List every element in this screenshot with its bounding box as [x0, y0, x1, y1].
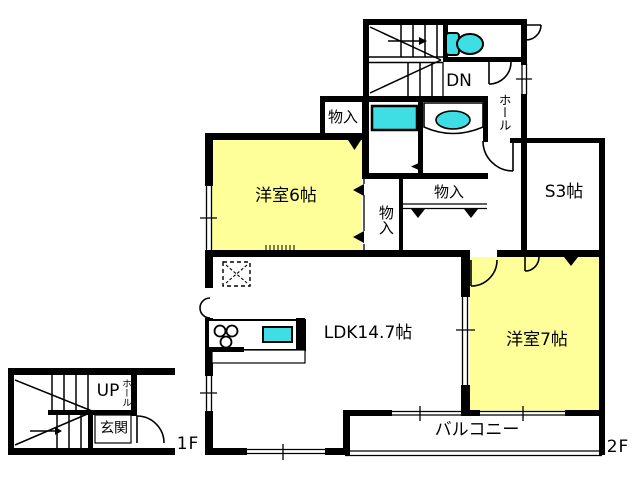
marker-washroom — [411, 162, 421, 171]
room-label-bedroom6: 洋室6帖 — [255, 188, 317, 206]
door-top-right — [526, 25, 541, 40]
room-label-closet-side: 物入 — [377, 205, 393, 235]
kitchen-sink-icon — [263, 327, 292, 342]
room-label-storage-s3: S3帖 — [545, 184, 584, 202]
room-label-ldk: LDK14.7帖 — [324, 325, 413, 343]
floor-plan-drawing — [0, 0, 640, 482]
window-ldk-bottom — [247, 444, 325, 460]
door-entrance-1f — [137, 416, 164, 443]
closet-middle-front — [403, 204, 487, 209]
floor-plan: 洋室6帖 S3帖 LDK14.7帖 洋室7帖 バルコニー 物入 物入 物入 ホー… — [0, 0, 640, 482]
door-ldk-west — [200, 298, 210, 318]
room-label-bedroom7: 洋室7帖 — [506, 332, 568, 350]
slider-ldk-balcony — [392, 406, 461, 421]
door-hall — [483, 141, 513, 171]
balcony-edge — [345, 451, 602, 456]
vanity-basin-icon — [424, 103, 483, 134]
stair-arrowhead-2f — [419, 37, 427, 45]
room-label-hall-1f: ホール — [120, 379, 130, 408]
stairs-down-label: DN — [446, 73, 472, 91]
floor-label-2f: 2F — [607, 439, 630, 457]
floor-label-1f: 1F — [177, 436, 200, 454]
door-toilet — [489, 62, 511, 84]
room-label-balcony: バルコニー — [435, 422, 520, 440]
marker-closet-middle-2 — [464, 209, 478, 218]
room-label-hall-2f: ホール — [497, 93, 510, 131]
room-label-closet-middle: 物入 — [434, 185, 464, 201]
refrigerator-space-icon — [223, 262, 250, 286]
room-label-entrance: 玄関 — [100, 422, 128, 437]
toilet-icon — [446, 33, 483, 55]
room-label-closet-top: 物入 — [328, 110, 358, 126]
opening-markers — [348, 140, 578, 266]
marker-closet-middle-1 — [411, 209, 425, 218]
window-ldk-left — [200, 376, 217, 411]
washing-machine-pan-icon — [372, 106, 417, 130]
staircase-2f — [369, 25, 443, 96]
stair-arrowhead-1f — [55, 427, 62, 435]
window-hall-right — [516, 64, 532, 95]
kitchen-counter — [208, 318, 305, 363]
stairs-up-label: UP — [97, 383, 120, 401]
